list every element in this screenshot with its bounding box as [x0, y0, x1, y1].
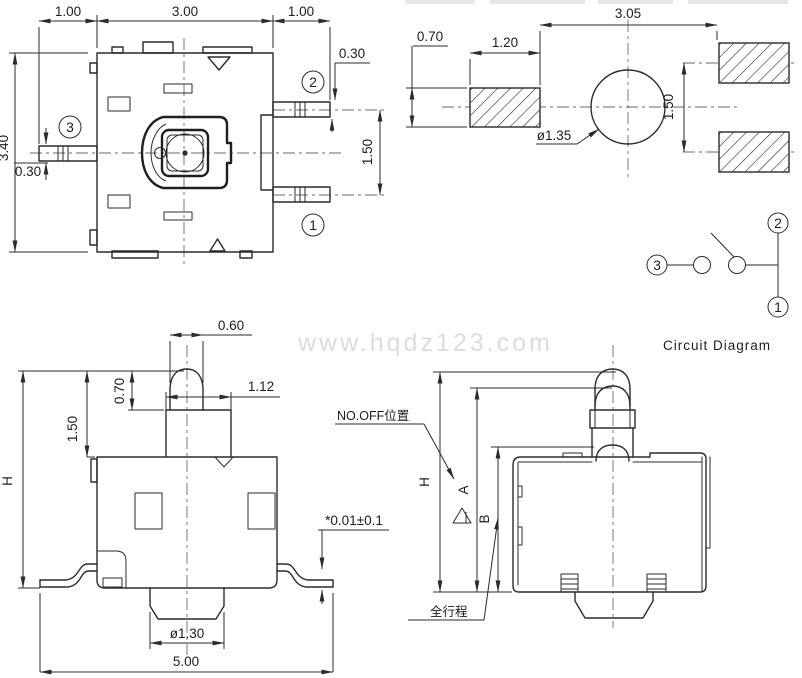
plunger-collar-inner — [595, 410, 630, 428]
wall-notch-1 — [518, 486, 522, 497]
body-v-notch — [215, 457, 233, 467]
plunger-pos-no-off — [595, 386, 630, 406]
ext-stem-width — [166, 392, 280, 410]
pad-right-top — [719, 43, 789, 83]
body-hole-right — [248, 493, 275, 529]
pcb-land-pattern-view: 3.05 1.20 0.70 ø1.35 1.50 — [406, 6, 798, 178]
foot-right-top — [277, 564, 333, 580]
dim-a: A — [456, 485, 471, 494]
leader-hole-arrow — [577, 129, 599, 144]
dim-pad-pitch: 1.50 — [661, 94, 676, 120]
label-full-travel: 全行程 — [430, 604, 468, 619]
terminal-1-pin — [273, 187, 330, 202]
balloon-1-label: 1 — [309, 217, 317, 233]
body-hole-left — [135, 493, 162, 529]
artifact — [490, 0, 585, 4]
side-body — [513, 453, 710, 618]
plunger-sides — [595, 389, 630, 410]
dim-body-height: 3.40 — [0, 135, 11, 161]
dim-overall-height: H — [0, 476, 15, 486]
dim-pin-right-len: 1.00 — [288, 4, 314, 19]
balloon-2-label: 2 — [309, 74, 317, 90]
side-terminal-right-stripes — [647, 579, 666, 589]
dim-plunger-height: 1.50 — [65, 416, 80, 442]
ext-lines-height — [9, 53, 88, 252]
orientation-notch-top — [208, 57, 230, 70]
dim-pin2-width: 0.30 — [339, 46, 365, 61]
circuit-diagram-title: Circuit Diagram — [663, 338, 771, 353]
dim-stem-width: 1.12 — [248, 379, 274, 394]
rotary-actuator — [142, 117, 231, 188]
top-view: 1.00 3.00 1.00 0.30 0.30 1.50 3.40 2 3 1 — [0, 4, 386, 266]
no-off-leader — [424, 424, 454, 479]
dim-pad-height: 0.70 — [417, 29, 443, 44]
pad-right-bottom — [719, 132, 789, 172]
front-bracket — [40, 564, 333, 619]
plunger-tip — [170, 369, 203, 410]
circuit-terminal-2-label: 2 — [774, 215, 782, 231]
side-body-outline — [513, 453, 706, 592]
dim-b: B — [477, 514, 492, 523]
top-edge-artifacts — [405, 0, 788, 4]
actuator-center-dot — [182, 150, 187, 155]
left-tab-bottom — [90, 230, 97, 245]
side-inner-walls — [518, 457, 702, 592]
side-terminal-left-stripes — [561, 579, 578, 589]
wall-notch-2 — [518, 527, 522, 545]
top-bump-large — [143, 42, 173, 53]
top-view-body — [90, 42, 273, 258]
circuit-terminal-3-label: 3 — [653, 257, 661, 273]
dim-standoff: *0.01±0.1 — [325, 513, 383, 528]
circuit-terminal-1-label: 1 — [774, 299, 782, 315]
dim-pin-pitch: 1.50 — [360, 139, 375, 165]
circuit-contact-fixed — [694, 257, 711, 274]
top-view-terminal-balloons: 2 3 1 — [59, 71, 324, 236]
circuit-diagram: 3 2 1 Circuit Diagram — [647, 213, 788, 353]
top-view-details — [108, 84, 192, 220]
top-bump-wide — [203, 47, 252, 53]
balloon-3-label: 3 — [66, 119, 74, 135]
side-dimensions: H A B NO.OFF位置 全行程 — [335, 372, 616, 620]
hole-lower-center — [164, 212, 192, 220]
terminal-2-stripes — [295, 102, 305, 117]
hole-upper-left — [108, 97, 130, 111]
dim-tip-width: 0.60 — [218, 318, 244, 333]
leader-pin2-width — [335, 63, 370, 86]
pad-left — [470, 88, 540, 127]
circuit-wires — [667, 233, 778, 297]
artifact — [405, 0, 475, 4]
full-travel-leader — [484, 518, 498, 620]
dim-pin3-width: 0.30 — [15, 164, 41, 179]
dim-tip-height: 0.70 — [112, 378, 127, 404]
left-tab-top — [90, 63, 97, 73]
dim-pad-width: 1.20 — [492, 35, 518, 50]
top-view-dimensions: 1.00 3.00 1.00 0.30 0.30 1.50 3.40 — [0, 4, 380, 252]
terminal-3-stripes — [58, 146, 68, 161]
leader-standoff — [318, 530, 389, 556]
side-bottom-boss — [575, 592, 653, 618]
leader-pad-height — [406, 46, 467, 127]
hole-upper-center — [164, 84, 192, 93]
dim-h: H — [417, 477, 432, 487]
front-view: 0.60 0.70 1.12 1.50 H *0.01±0.1 ø1.30 5.… — [0, 318, 389, 672]
plunger-pos-full — [596, 445, 629, 461]
side-plunger — [590, 369, 635, 461]
dim-overall-width: 5.00 — [173, 654, 199, 669]
circuit-contact-common — [729, 257, 746, 274]
plunger-collar — [590, 410, 635, 428]
label-no-off-position: NO.OFF位置 — [337, 408, 409, 423]
position-triangle-symbol — [453, 508, 471, 523]
ext-lines-span — [540, 31, 717, 85]
ext-overall-height — [18, 371, 184, 588]
plunger-collar — [166, 410, 231, 457]
dim-body-width: 3.00 — [172, 4, 198, 19]
artifact — [598, 0, 673, 4]
drawing-sheet: www.hqdz123.com — [0, 0, 802, 678]
front-body — [91, 457, 277, 588]
dim-hole-dia: ø1.35 — [537, 128, 572, 143]
side-view: H A B NO.OFF位置 全行程 — [335, 345, 710, 628]
technical-drawing-canvas: www.hqdz123.com — [0, 0, 802, 678]
orientation-notch-bottom — [210, 239, 225, 251]
body-left-tab — [91, 459, 97, 482]
dim-boss-dia: ø1.30 — [170, 626, 205, 641]
ext-h — [433, 372, 616, 592]
artifact — [688, 0, 788, 4]
watermark-text: www.hqdz123.com — [297, 329, 553, 357]
foot-left-top — [40, 564, 97, 580]
right-plate — [261, 115, 272, 190]
hole-lower-left — [108, 195, 130, 208]
terminal-2-pin — [273, 102, 330, 117]
front-plunger — [166, 369, 231, 457]
ext-tip-width — [170, 335, 252, 383]
body-slot — [103, 578, 122, 587]
ext-lines-top — [39, 15, 330, 144]
top-bump-small — [112, 47, 123, 53]
dim-span: 3.05 — [615, 6, 641, 21]
dim-pin-left-len: 1.00 — [55, 4, 81, 19]
terminal-1-stripes — [295, 187, 305, 202]
pcb-dimensions: 3.05 1.20 0.70 ø1.35 1.50 — [406, 6, 717, 152]
